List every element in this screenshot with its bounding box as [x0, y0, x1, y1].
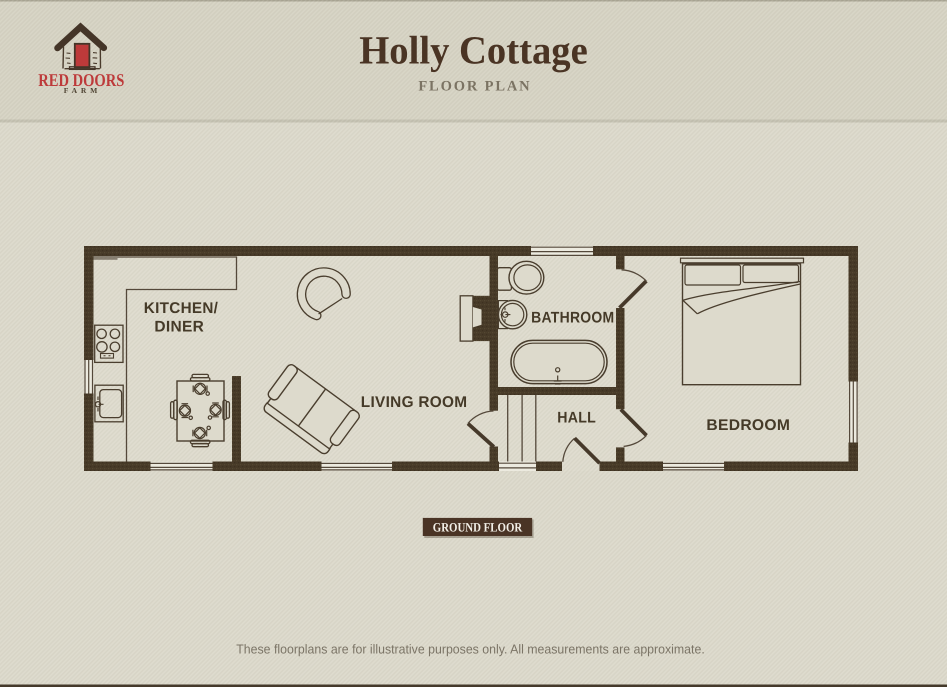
svg-text:KITCHEN/: KITCHEN/ [144, 300, 219, 317]
svg-text:LIVING ROOM: LIVING ROOM [361, 394, 468, 411]
svg-text:GROUND FLOOR: GROUND FLOOR [433, 520, 523, 534]
svg-text:Holly Cottage: Holly Cottage [359, 28, 588, 73]
svg-text:HALL: HALL [557, 410, 596, 427]
svg-text:DINER: DINER [154, 319, 204, 336]
svg-text:FLOOR PLAN: FLOOR PLAN [418, 79, 530, 95]
svg-text:BEDROOM: BEDROOM [706, 417, 790, 434]
svg-text:These floorplans are for illus: These floorplans are for illustrative pu… [236, 642, 705, 657]
svg-text:BATHROOM: BATHROOM [531, 309, 614, 326]
